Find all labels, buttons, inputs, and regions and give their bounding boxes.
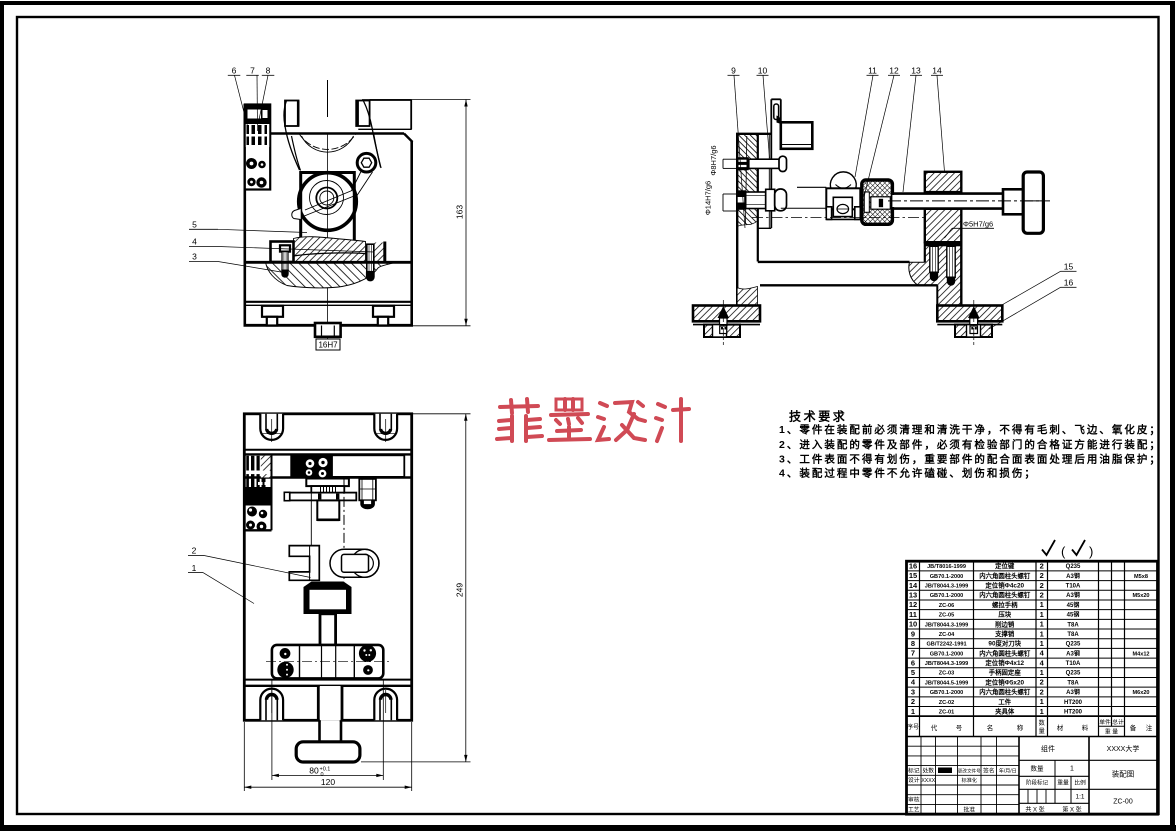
svg-text:料: 料 xyxy=(1082,723,1089,732)
svg-text:XXXX: XXXX xyxy=(921,778,935,784)
svg-text:年/月/日: 年/月/日 xyxy=(999,768,1017,775)
svg-text:15: 15 xyxy=(1064,262,1074,272)
svg-text:夹具体: 夹具体 xyxy=(995,706,1015,715)
svg-text:7: 7 xyxy=(911,649,915,658)
svg-text:量: 量 xyxy=(1039,728,1045,735)
svg-text:4、装配过程中零件不允许磕碰、划伤和损伤；: 4、装配过程中零件不允许磕碰、划伤和损伤； xyxy=(779,467,1037,480)
svg-text:16: 16 xyxy=(1064,278,1074,288)
svg-text:2: 2 xyxy=(1040,581,1044,590)
svg-text:装配图: 装配图 xyxy=(1112,769,1135,779)
svg-text:9: 9 xyxy=(911,629,915,638)
svg-text:2: 2 xyxy=(1040,678,1044,687)
svg-text:材: 材 xyxy=(1057,723,1064,732)
svg-text:ZC-01: ZC-01 xyxy=(939,709,955,715)
svg-text:标准化: 标准化 xyxy=(961,776,977,784)
svg-text:3: 3 xyxy=(911,687,915,696)
svg-text:HT200: HT200 xyxy=(1064,709,1083,715)
svg-text:ZC-05: ZC-05 xyxy=(939,613,955,619)
svg-text:8: 8 xyxy=(266,66,271,76)
svg-text:阶段标记: 阶段标记 xyxy=(1026,779,1049,787)
svg-text:ZC-02: ZC-02 xyxy=(939,700,955,706)
svg-text:10: 10 xyxy=(909,620,917,629)
svg-text:序号: 序号 xyxy=(907,723,919,731)
svg-text:ZC-00: ZC-00 xyxy=(1113,799,1133,806)
svg-text:工艺: 工艺 xyxy=(908,806,920,814)
svg-text:签名: 签名 xyxy=(983,767,995,775)
svg-text:单件: 单件 xyxy=(1099,718,1111,726)
svg-text:JB/T8044.3-1999: JB/T8044.3-1999 xyxy=(925,584,969,590)
svg-text:1: 1 xyxy=(1040,707,1044,716)
svg-text:Φ14H7/g6: Φ14H7/g6 xyxy=(704,181,713,215)
svg-text:手柄固定座: 手柄固定座 xyxy=(989,668,1022,677)
svg-text:T10A: T10A xyxy=(1066,584,1081,590)
svg-text:249: 249 xyxy=(454,583,464,597)
svg-text:JB/T8044.3-1999: JB/T8044.3-1999 xyxy=(925,661,969,667)
svg-text:A3钢: A3钢 xyxy=(1066,591,1080,599)
svg-text:数: 数 xyxy=(1039,719,1046,727)
svg-text:工件: 工件 xyxy=(998,697,1011,706)
svg-text:(: ( xyxy=(1061,544,1066,559)
svg-text:M4x12: M4x12 xyxy=(1132,651,1149,657)
svg-text:13: 13 xyxy=(911,66,921,76)
svg-text:1: 1 xyxy=(1040,620,1044,629)
svg-text:1: 1 xyxy=(911,707,915,716)
svg-text:12: 12 xyxy=(909,600,917,609)
svg-text:注: 注 xyxy=(1146,723,1153,732)
svg-text:1: 1 xyxy=(1040,629,1044,638)
svg-text:GB70.1-2000: GB70.1-2000 xyxy=(930,651,964,657)
svg-text:1: 1 xyxy=(1040,600,1044,609)
svg-text:T8A: T8A xyxy=(1067,632,1079,638)
svg-text:90度对刀块: 90度对刀块 xyxy=(988,639,1021,648)
svg-text:11: 11 xyxy=(868,66,877,76)
svg-text:Q235: Q235 xyxy=(1066,671,1081,677)
svg-text:2: 2 xyxy=(911,697,915,706)
svg-text:Φ5H7/g6: Φ5H7/g6 xyxy=(963,220,993,229)
svg-text:ZC-06: ZC-06 xyxy=(939,603,955,609)
svg-text:ZC-04: ZC-04 xyxy=(939,632,955,638)
svg-text:Φ8H7/g6: Φ8H7/g6 xyxy=(709,145,718,175)
svg-text:数量: 数量 xyxy=(1031,764,1045,773)
svg-text:10: 10 xyxy=(758,66,768,76)
svg-text:T10A: T10A xyxy=(1066,661,1081,667)
svg-text:支撑销: 支撑销 xyxy=(994,629,1015,638)
svg-text:1: 1 xyxy=(1040,610,1044,619)
svg-text:M5x8: M5x8 xyxy=(1134,574,1148,580)
svg-text:A3钢: A3钢 xyxy=(1066,649,1080,657)
svg-text:5: 5 xyxy=(911,668,915,677)
svg-text:共 X 张: 共 X 张 xyxy=(1025,806,1044,814)
svg-text:M6x20: M6x20 xyxy=(1132,690,1149,696)
svg-text:技术要求: 技术要求 xyxy=(789,409,847,424)
svg-text:6: 6 xyxy=(232,66,237,76)
svg-text:T8A: T8A xyxy=(1067,622,1079,628)
svg-text:16: 16 xyxy=(909,561,917,570)
svg-text:ZC-03: ZC-03 xyxy=(939,671,955,677)
svg-text:批准: 批准 xyxy=(963,806,975,814)
svg-text:JB/T8016-1999: JB/T8016-1999 xyxy=(927,564,966,570)
svg-text:定位销Φ5x20: 定位销Φ5x20 xyxy=(984,677,1024,686)
svg-text:9: 9 xyxy=(731,66,736,76)
svg-text:GB70.1-2000: GB70.1-2000 xyxy=(930,690,964,696)
svg-text:处数: 处数 xyxy=(922,767,934,775)
svg-text:2: 2 xyxy=(192,546,197,556)
svg-text:1: 1 xyxy=(1040,697,1044,706)
svg-text:1: 1 xyxy=(192,563,197,573)
svg-text:1:1: 1:1 xyxy=(1075,794,1084,801)
svg-text:内六角圆柱头螺钉: 内六角圆柱头螺钉 xyxy=(979,687,1031,696)
svg-text:14: 14 xyxy=(932,66,942,76)
svg-text:1、零件在装配前必须清理和清洗干净，不得有毛刺、飞边、氧化皮: 1、零件在装配前必须清理和清洗干净，不得有毛刺、飞边、氧化皮； xyxy=(779,423,1162,436)
svg-text:称: 称 xyxy=(1017,723,1024,732)
svg-text:代: 代 xyxy=(931,723,938,732)
svg-text:JB/T8044.5-1999: JB/T8044.5-1999 xyxy=(925,680,969,686)
svg-text:8: 8 xyxy=(911,639,915,648)
svg-text:11: 11 xyxy=(909,610,917,619)
svg-text:设计: 设计 xyxy=(908,776,920,784)
svg-text:更改文件号: 更改文件号 xyxy=(958,768,981,775)
svg-text:内六角圆柱头螺钉: 内六角圆柱头螺钉 xyxy=(979,648,1031,657)
svg-text:14: 14 xyxy=(909,581,918,590)
svg-text:5: 5 xyxy=(192,220,197,230)
svg-text:Q235: Q235 xyxy=(1066,642,1081,648)
svg-text:15: 15 xyxy=(909,571,917,580)
svg-text:45钢: 45钢 xyxy=(1067,611,1080,619)
svg-text:T8A: T8A xyxy=(1067,680,1079,686)
svg-text:GB/T2242-1991: GB/T2242-1991 xyxy=(926,642,966,648)
svg-text:2、进入装配的零件及部件，必须有检验部门的合格证方能进行装配: 2、进入装配的零件及部件，必须有检验部门的合格证方能进行装配； xyxy=(779,438,1162,451)
svg-text:重量: 重量 xyxy=(1057,779,1069,787)
svg-text:45钢: 45钢 xyxy=(1067,601,1080,609)
svg-text:): ) xyxy=(1089,544,1093,559)
svg-text:GB70.1-2000: GB70.1-2000 xyxy=(930,593,964,599)
svg-text:A3钢: A3钢 xyxy=(1066,572,1080,580)
svg-text:削边销: 削边销 xyxy=(995,619,1015,628)
svg-text:压块: 压块 xyxy=(998,610,1011,619)
svg-text:2: 2 xyxy=(1040,687,1044,696)
svg-text:GB70.1-2000: GB70.1-2000 xyxy=(930,574,964,580)
svg-text:13: 13 xyxy=(909,591,917,600)
svg-text:A3钢: A3钢 xyxy=(1066,688,1080,696)
svg-text:审核: 审核 xyxy=(908,796,920,804)
svg-text:3、工件表面不得有划伤，重要部件的配合面表面处理后用油脂保护: 3、工件表面不得有划伤，重要部件的配合面表面处理后用油脂保护； xyxy=(779,453,1162,466)
svg-text:HT200: HT200 xyxy=(1064,700,1083,706)
svg-text:4: 4 xyxy=(192,237,197,247)
svg-text:比例: 比例 xyxy=(1074,779,1086,787)
svg-text:JB/T8044.3-1999: JB/T8044.3-1999 xyxy=(925,622,969,628)
svg-text:号: 号 xyxy=(956,724,963,732)
svg-text:定位销Φ4c20: 定位销Φ4c20 xyxy=(984,581,1024,590)
svg-text:2: 2 xyxy=(1040,571,1044,580)
svg-text:Q235: Q235 xyxy=(1066,564,1081,570)
svg-text:12: 12 xyxy=(889,66,899,76)
svg-text:2: 2 xyxy=(1040,561,1044,570)
svg-text:80: 80 xyxy=(309,765,319,775)
svg-text:2: 2 xyxy=(1040,591,1044,600)
svg-text:M5x20: M5x20 xyxy=(1132,593,1149,599)
svg-text:1: 1 xyxy=(1070,766,1074,773)
svg-text:定位销Φ4x12: 定位销Φ4x12 xyxy=(984,658,1024,667)
svg-text:163: 163 xyxy=(455,205,465,219)
svg-text:总计: 总计 xyxy=(1112,718,1124,726)
svg-text:标记: 标记 xyxy=(908,767,920,775)
svg-text:16H7: 16H7 xyxy=(318,341,338,350)
svg-text:名: 名 xyxy=(987,723,994,732)
svg-text:内六角圆柱头螺钉: 内六角圆柱头螺钉 xyxy=(979,571,1031,580)
svg-text:6: 6 xyxy=(911,658,915,667)
svg-text:螺拉手柄: 螺拉手柄 xyxy=(992,600,1018,609)
svg-text:第 X 张: 第 X 张 xyxy=(1062,806,1081,814)
svg-text:1: 1 xyxy=(1040,639,1044,648)
svg-text:XXXX大学: XXXX大学 xyxy=(1107,744,1140,753)
svg-text:组件: 组件 xyxy=(1041,744,1055,753)
svg-text:重 量: 重 量 xyxy=(1105,728,1118,736)
svg-text:备: 备 xyxy=(1130,723,1137,732)
svg-text:1: 1 xyxy=(1040,668,1044,677)
svg-text:3: 3 xyxy=(192,252,197,262)
svg-text:120: 120 xyxy=(321,777,335,787)
svg-text:内六角圆柱头螺钉: 内六角圆柱头螺钉 xyxy=(979,590,1031,599)
svg-text:7: 7 xyxy=(250,66,255,76)
